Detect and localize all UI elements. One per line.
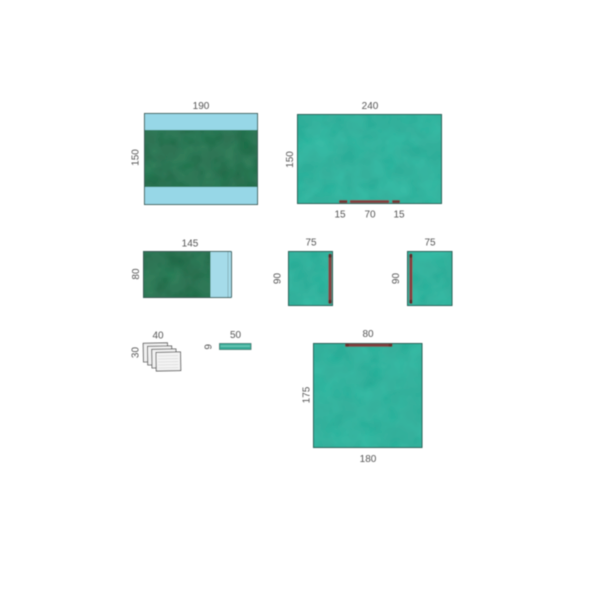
svg-text:180: 180 bbox=[360, 454, 377, 465]
svg-text:50: 50 bbox=[230, 330, 242, 341]
svg-text:145: 145 bbox=[182, 239, 199, 250]
svg-text:15: 15 bbox=[393, 210, 405, 221]
svg-text:240: 240 bbox=[362, 101, 379, 112]
svg-text:80: 80 bbox=[362, 329, 374, 340]
svg-text:40: 40 bbox=[152, 331, 164, 342]
svg-text:80: 80 bbox=[131, 268, 142, 280]
svg-text:70: 70 bbox=[364, 210, 376, 221]
svg-text:90: 90 bbox=[273, 273, 284, 285]
svg-text:90: 90 bbox=[391, 273, 402, 285]
svg-text:30: 30 bbox=[130, 347, 141, 359]
svg-text:175: 175 bbox=[302, 386, 313, 403]
svg-text:190: 190 bbox=[193, 101, 210, 112]
svg-text:150: 150 bbox=[285, 151, 296, 168]
svg-text:75: 75 bbox=[305, 238, 317, 249]
svg-text:75: 75 bbox=[424, 238, 436, 249]
svg-text:9: 9 bbox=[204, 344, 215, 350]
svg-text:150: 150 bbox=[131, 149, 142, 166]
svg-text:15: 15 bbox=[334, 210, 346, 221]
